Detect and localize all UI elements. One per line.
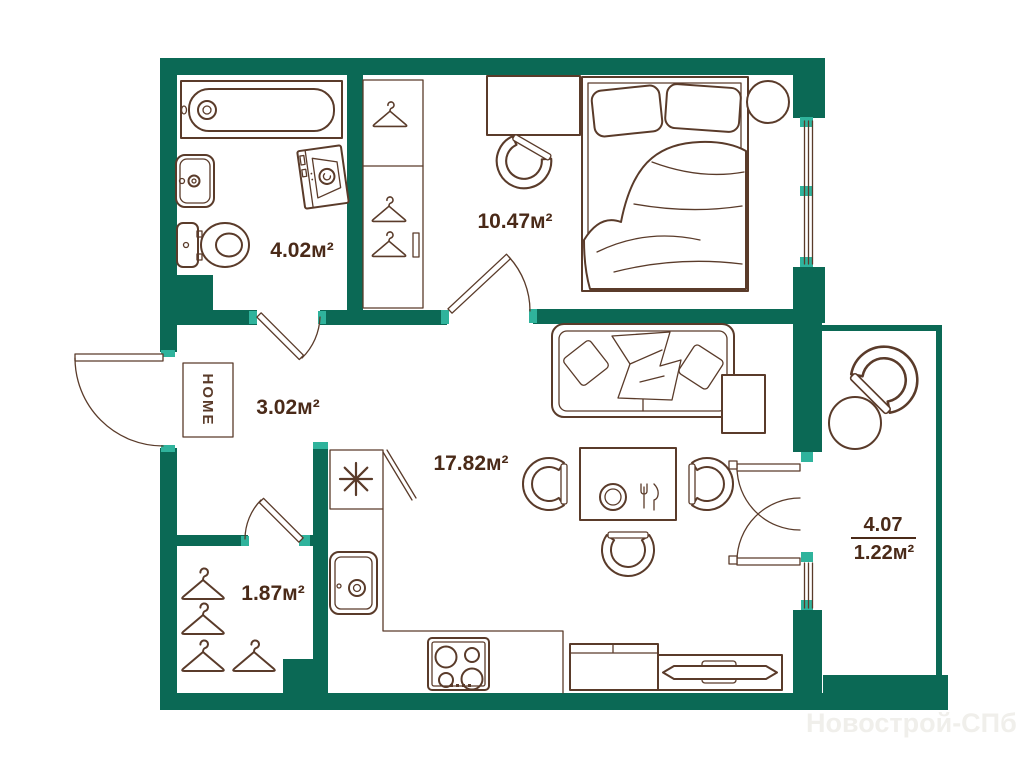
wall-wardrobe-bottom [320,310,447,325]
bathtub [181,81,342,138]
wall-top [160,58,825,75]
wall-bathroom-pier [177,275,213,325]
balcony-table [829,397,881,449]
watermark: Новострой-СПб [806,708,1017,738]
hanger-icon [182,568,224,599]
tv-stand [658,655,782,690]
dining-chair [602,532,654,576]
room-label-bedroom: 10.47м² [477,210,552,233]
hanger-icon [233,640,275,671]
entrance-mat: HOME [183,363,233,437]
hanger-icon [182,603,224,634]
tv-cabinet [570,644,658,690]
desk [487,76,580,135]
balcony-area-reduced: 1.22м² [854,542,915,564]
dining-table [580,448,676,520]
wall-left-upper [160,58,177,352]
balcony-french-doors [729,461,800,565]
floor-plan: HOME 4.02м² 10.47м² 3.02м² 17.82м² 1.87м… [0,0,1024,768]
balcony [829,333,931,449]
balcony-rail-top [822,325,942,331]
wardrobe [363,80,423,308]
washing-machine [297,145,349,209]
bathroom-sink [176,155,214,207]
dining-chair [523,458,567,510]
side-table [722,375,765,433]
bedroom [487,76,789,291]
dining-set [523,448,733,576]
double-bed [582,77,748,291]
wall-right-bedroom-upper [793,58,825,118]
wall-right-living-upper [793,323,822,452]
wall-bedroom-bottom [533,309,793,324]
closet-door [245,498,303,542]
stove [428,638,489,690]
wall-balcony-bottom [823,675,948,710]
wall-left-lower [160,448,177,710]
entrance-door [75,354,163,446]
asterisk-icon [340,463,372,495]
desk-chair [487,131,557,198]
bedroom-door [448,254,530,313]
sofa [552,324,734,417]
wall-closet-pier [283,659,313,695]
living-room [523,324,782,690]
wall-bathroom-right [347,58,363,310]
toilet [177,223,249,267]
wall-kitchen-divider [313,448,328,695]
corner-cabinet [383,452,412,500]
balcony-rail-right [936,325,942,677]
hanger-icon [182,640,224,671]
bathroom-door [257,313,320,360]
entrance-mat-label: HOME [199,374,216,427]
wall-bottom [160,693,823,710]
wall-closet-top-right [308,535,328,546]
tv [663,666,777,679]
room-label-balcony: 4.07 1.22м² [851,514,916,564]
dining-chair [689,458,733,510]
room-label-closet: 1.87м² [241,582,304,605]
balcony-area-full: 4.07 [864,514,903,536]
wall-right-bedroom-lower [793,267,825,323]
room-label-bathroom: 4.02м² [270,239,333,262]
room-label-living-kitchen: 17.82м² [433,452,508,475]
kitchen-sink [330,552,377,614]
wall-closet-top-left [160,535,248,546]
wall-right-living-lower [793,610,822,705]
room-label-hallway: 3.02м² [256,396,319,419]
bedside-table [747,81,789,123]
